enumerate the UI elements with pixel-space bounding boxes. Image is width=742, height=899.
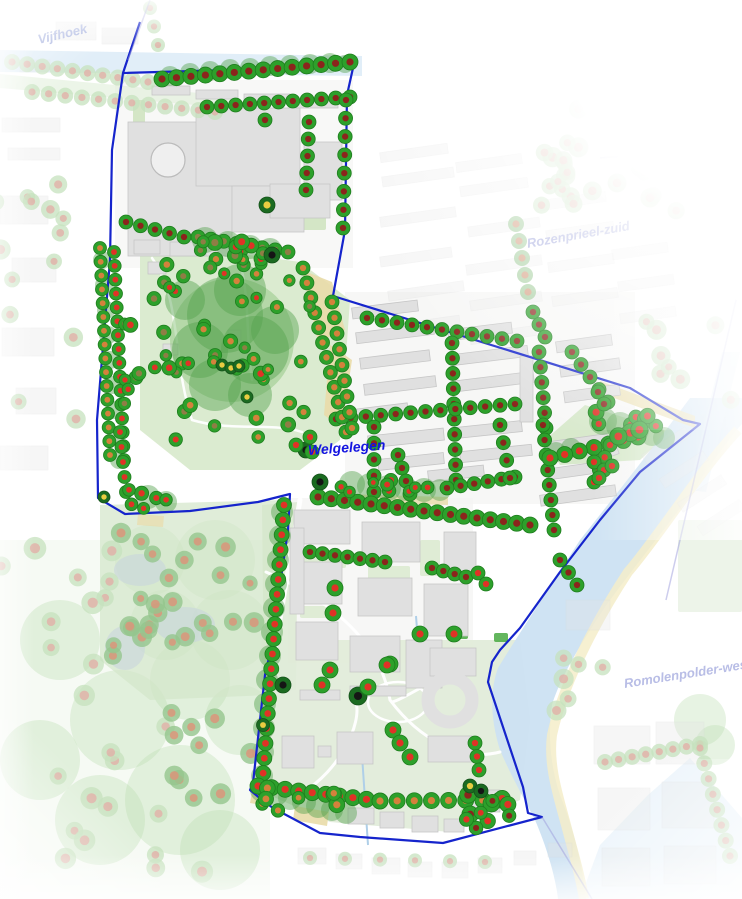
tree-center [104,397,110,403]
tree-center [472,740,478,746]
tree-center [714,806,721,813]
tree-center [167,709,175,717]
tree-center [180,556,188,564]
tree-center [113,291,119,297]
tree-center [340,207,346,213]
tree-center [137,538,145,546]
tree-center [484,333,490,339]
tree-center [274,591,281,598]
tree-center [54,65,61,72]
tree-center [105,411,111,417]
faded-building [382,167,455,187]
tree-center [711,321,719,329]
tree-center [285,249,291,255]
building [412,816,438,832]
tree-center [125,386,131,392]
tree-center [89,659,98,668]
tree-center [364,315,370,321]
tree-center [125,622,134,631]
tree-center [369,557,375,563]
tree-center [9,276,16,283]
tree-center [463,816,469,822]
building [152,86,190,95]
tree-center [262,117,268,123]
tree-center [613,179,622,188]
tree-center [338,484,343,489]
tree-center [181,234,187,240]
tree-center [329,299,335,305]
tree-center [344,393,350,399]
tree-center [574,105,583,114]
tree-center [389,726,396,733]
tree-center [242,345,247,350]
tree-center [229,618,237,626]
tree-center [202,71,209,78]
tree-center [363,413,369,419]
tree-center [120,459,126,465]
tree-center [394,504,401,511]
tree-center [116,346,122,352]
tree-center [267,680,274,687]
tree-center [260,66,267,73]
tree-center [318,96,324,102]
tree-center [211,239,218,246]
tree-center [593,409,600,416]
tree-center [69,333,78,342]
tree-center [331,790,337,796]
map-canvas[interactable] [0,0,742,899]
tree-center [331,315,337,321]
tree-center [467,405,473,411]
tree-center [236,363,241,368]
tree-center [8,58,15,65]
tree-center [384,482,390,488]
tree-center [106,424,112,430]
tree-center [447,858,453,864]
tree-center [274,304,280,310]
tree-center [137,595,144,602]
faded-building [0,446,48,470]
tree-center [314,493,321,500]
faded-building [598,788,650,830]
tree-center [187,723,195,731]
tree-center [282,786,289,793]
tree-center [296,795,302,801]
tree-center [207,265,213,271]
tree-center [561,451,568,458]
faded-building [468,217,541,237]
green-patch [678,520,742,612]
tree-center [262,795,269,802]
tree-center [429,565,435,571]
tree-center [261,100,267,106]
tree-center [524,288,531,295]
tree-center [212,423,218,429]
tree-center [447,511,454,518]
tree-center [615,756,622,763]
tree-center [382,559,388,565]
round-building [151,143,185,177]
tree-center [726,48,733,55]
tree-center [198,248,203,253]
tree-center [101,494,106,499]
tree-center [395,452,401,458]
tree-center [69,67,76,74]
tree-center [551,527,557,533]
pale-vegetation-blob [180,810,260,890]
tree-center [636,426,644,434]
tree-center [266,695,273,702]
tree-center [341,188,347,194]
tree-center [249,618,258,627]
tree-center [371,440,377,446]
tree-center [499,336,505,342]
tree-center [275,807,281,813]
faded-building [2,118,60,132]
tree-center [596,475,602,481]
tree-center [476,767,482,773]
tree-center [46,205,54,213]
tree-center [471,480,477,486]
tree-center [512,401,518,407]
tree-center [473,514,480,521]
tree-center [286,400,292,406]
tree-center [168,597,177,606]
tree-center [364,683,371,690]
building [358,578,412,616]
tree-center [657,351,666,360]
tree-center [513,520,520,527]
tree-center [262,740,269,747]
tree-center [449,355,455,361]
tree-center [500,518,507,525]
tree-center [591,459,597,465]
tree-center [560,654,568,662]
tree-center [197,867,207,877]
tree-center [129,76,136,83]
tree-center [646,193,655,202]
tree-center [500,440,506,446]
tree-center [457,483,463,489]
tree-center [518,254,525,261]
tree-center [238,238,245,245]
tree-center [546,482,552,488]
tree-center [672,207,680,215]
tree-center [652,325,661,334]
building [282,736,314,768]
tree-center [151,295,157,301]
tree-center [56,229,64,237]
tree-center [216,789,225,798]
tree-center [116,528,125,537]
tree-center [129,501,135,507]
tree-center [306,119,312,125]
faded-building [380,143,449,162]
tree-center [100,300,106,306]
tree-center [548,497,554,503]
tree-center [274,65,281,72]
tree-center [381,502,388,509]
tree-center [512,220,519,227]
tree-center [669,746,676,753]
tree-center [152,365,158,371]
tree-center [145,101,152,108]
tree-center [151,23,157,29]
tree-center [413,485,418,490]
tree-center [564,695,572,703]
tree-center [705,775,712,782]
tree-center [287,278,292,283]
tree-center [542,334,548,340]
faded-building [618,274,675,292]
tree-center [290,98,296,104]
tree-center [383,661,390,668]
tree-center [653,423,659,429]
tree-center [158,75,165,82]
tree-center [309,449,315,455]
tree-center [504,801,511,808]
tree-center [247,101,253,107]
tree-center [537,364,543,370]
tree-center [246,749,255,758]
tree-center [569,200,577,208]
tree-center [137,223,143,229]
tree-center [644,413,651,420]
tree-center [110,642,117,649]
tree-center [173,437,179,443]
tree-center [255,434,261,440]
tree-center [726,852,733,859]
tree-center [452,462,458,468]
tree-center [123,219,129,225]
tree-center [328,495,335,502]
tree-center [187,402,194,409]
tree-center [101,328,107,334]
tree-center [149,550,157,558]
tree-center [504,457,510,463]
tree-center [178,105,185,112]
tree-center [128,99,135,106]
tree-center [344,554,350,560]
tree-center [190,794,198,802]
tree-center [315,324,321,330]
tree-center [39,63,46,70]
tree-center [727,396,735,404]
tree-center [452,571,458,577]
tree-center [219,362,224,367]
tree-center [304,280,310,286]
tree-center [497,402,503,408]
tree-center [307,304,312,309]
tree-center [87,793,97,803]
tree-center [576,447,583,454]
tree-center [165,574,173,582]
tree-center [99,286,105,292]
tree-center [440,568,446,574]
tree-center [357,556,363,562]
tree-center [329,609,336,616]
tree-center [170,731,178,739]
tree-center [399,465,405,471]
tree-center [222,271,227,276]
tree-center [335,399,341,405]
tree-center [587,374,593,380]
tree-center [342,152,348,158]
tree-center [595,389,601,395]
tree-center [103,802,112,811]
tree-center [554,178,561,185]
tree-center [194,537,202,545]
tree-center [376,797,383,804]
tree-center [483,581,489,587]
tree-center [231,69,238,76]
tree-center [167,285,172,290]
tree-center [424,324,430,330]
tree-center [303,187,309,193]
tree-center [285,421,292,428]
tree-center [450,386,456,392]
tree-center [153,495,159,501]
tree-center [367,500,374,507]
faded-building [56,22,96,40]
tree-center [559,674,568,683]
tree-center [422,408,428,414]
tree-center [300,265,306,271]
tree-center [416,630,423,637]
tree-center [145,626,153,634]
tree-center [474,753,480,759]
tree-center [467,783,473,789]
tree-center [80,835,90,845]
tree-center [204,104,210,110]
tree-center [536,321,542,327]
tree-center [200,239,205,244]
tree-center [218,103,224,109]
tree-center [200,326,206,332]
tree-center [319,339,325,345]
tree-center [450,630,457,637]
tree-center [475,570,481,576]
tree-center [601,758,608,765]
building [520,356,533,422]
building [428,736,472,762]
tree-center [696,744,703,751]
tree-center [99,72,106,79]
tree-center [261,755,268,762]
tree-center [336,346,342,352]
tree-center [602,454,608,460]
tree-center [260,722,266,728]
tree-center [80,691,90,701]
tree-center [341,378,347,384]
faded-building [2,328,54,356]
tree-center [452,406,458,412]
tree-center [303,62,310,69]
map-viewport[interactable]: Vijfhoek Rozenprieel-zuid Welgelegen Rom… [0,0,742,899]
tree-center [263,201,270,208]
tree-center [428,797,435,804]
tree-center [264,785,271,792]
tree-center [268,665,275,672]
tree-center [540,394,546,400]
tree-center [279,517,286,524]
tree-center [333,801,340,808]
tree-center [331,384,337,390]
tree-center [273,606,280,613]
tree-center [227,338,233,344]
tree-center [210,714,219,723]
tree-center [270,636,277,643]
tree-center [349,425,355,431]
tree-center [425,485,431,491]
tree-center [151,600,160,609]
tree-center [539,379,545,385]
tree-center [540,422,546,428]
tree-center [244,394,249,399]
tree-center [30,543,40,553]
tree-center [155,42,161,48]
faded-building [566,600,610,630]
tree-center [195,741,203,749]
tree-center [574,582,580,588]
tree-center [54,180,62,188]
tree-center [107,748,115,756]
tree-center [122,401,128,407]
tree-center [97,245,103,251]
tree-center [484,817,491,824]
green-patch [494,633,508,642]
tree-center [298,359,304,365]
tree-center [84,70,91,77]
tree-center [307,434,313,440]
tree-center [393,411,399,417]
tree-center [407,410,413,416]
tree-center [112,263,118,269]
tree-center [50,258,57,265]
tree-center [331,584,338,591]
tree-center [277,546,284,553]
tree-center [301,409,307,415]
tree-center [127,322,134,329]
tree-center [341,497,348,504]
tree-center [545,467,551,473]
tree-center [349,794,356,801]
tree-center [406,753,413,760]
tree-center [564,169,571,176]
tree-center [221,542,230,551]
tree-center [450,370,456,376]
tree-center [317,61,324,68]
tree-center [275,576,282,583]
tree-center [497,422,503,428]
tree-center [152,226,158,232]
tree-center [334,330,340,336]
tree-center [514,338,520,344]
tree-center [307,549,313,555]
faded-building [602,848,650,886]
tree-center [342,115,348,121]
tree-center [538,201,546,209]
tree-center [323,354,329,360]
tree-center [247,580,254,587]
tree-center [665,363,672,370]
tree-center [138,490,144,496]
tree-center [394,319,400,325]
building [337,732,373,764]
tree-center [332,552,338,558]
tree-center [119,444,125,450]
tree-center [346,409,352,415]
